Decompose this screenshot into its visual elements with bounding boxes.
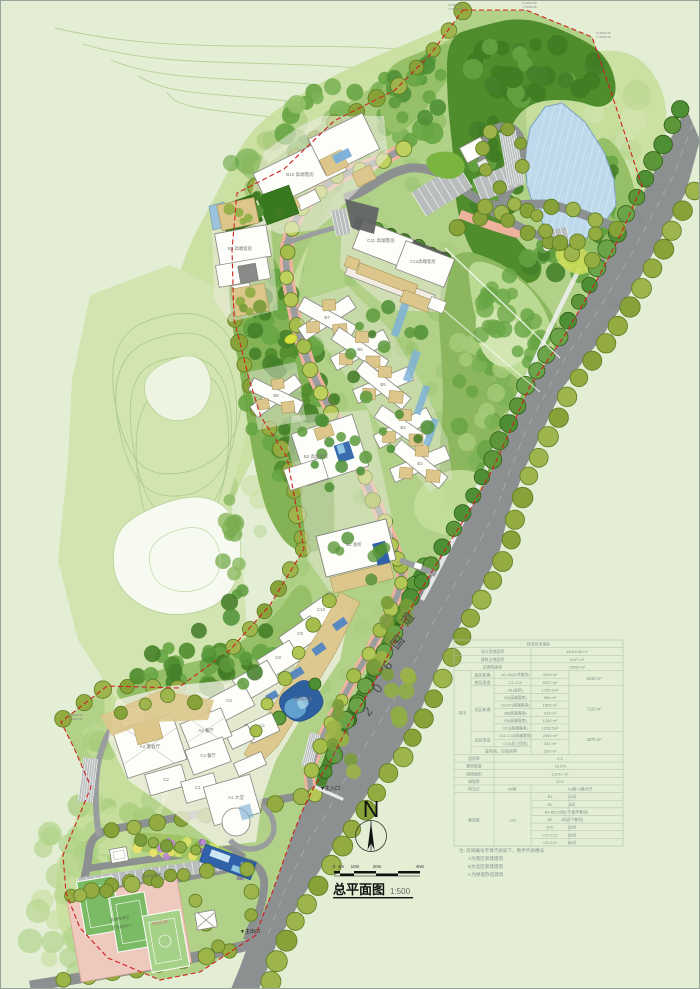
svg-text:2544 m²: 2544 m² <box>543 733 558 738</box>
svg-text:设计用地面积: 设计用地面积 <box>481 649 504 654</box>
svg-text:C1: C1 <box>195 785 201 790</box>
svg-text:▼主入口: ▼主入口 <box>320 785 340 792</box>
svg-text:896 m²: 896 m² <box>544 695 557 700</box>
svg-text:Y=3292.98: Y=3292.98 <box>596 35 611 39</box>
svg-text:4间(2个套间): 4间(2个套间) <box>561 817 584 822</box>
svg-text:Y=3292.98: Y=3292.98 <box>608 303 623 307</box>
svg-text:93辆: 93辆 <box>508 787 516 792</box>
svg-text:21241 m²: 21241 m² <box>552 771 569 776</box>
svg-text:5097 m²: 5097 m² <box>543 680 558 685</box>
svg-text:B7: B7 <box>324 315 330 320</box>
svg-text:10间: 10间 <box>568 794 576 799</box>
svg-text:Y=3292.98: Y=3292.98 <box>68 717 83 721</box>
svg-text:B9(高端客房): B9(高端客房) <box>504 718 527 723</box>
svg-text:B8: B8 <box>273 393 279 398</box>
svg-text:56间: 56间 <box>568 840 576 845</box>
svg-text:C5: C5 <box>259 723 265 728</box>
svg-text:C为保留改造建筑: C为保留改造建筑 <box>468 871 504 878</box>
svg-text:1280 m²: 1280 m² <box>543 718 558 723</box>
svg-text:停车位: 停车位 <box>468 787 480 792</box>
svg-text:注: 房间编号字母代表如下，数字代表楼号: 注: 房间编号字母代表如下，数字代表楼号 <box>459 847 545 854</box>
svg-text:B8(高端客房): B8(高端客房) <box>504 710 527 715</box>
svg-text:A2 宴会厅: A2 宴会厅 <box>140 743 161 750</box>
svg-text:建筑密度: 建筑密度 <box>466 764 482 769</box>
svg-text:N: N <box>363 796 380 822</box>
svg-text:0.4: 0.4 <box>557 756 563 761</box>
svg-text:B3: B3 <box>417 461 423 466</box>
svg-text:10m: 10m <box>351 864 360 869</box>
svg-text:40m: 40m <box>416 864 425 869</box>
svg-text:1:500: 1:500 <box>390 887 411 896</box>
svg-text:B9 高端客房: B9 高端客房 <box>228 245 253 252</box>
svg-text:其中: 其中 <box>459 711 467 716</box>
svg-text:C7: C7 <box>252 676 258 681</box>
svg-text:7128 m²: 7128 m² <box>586 707 602 712</box>
svg-text:B3-B8: B3-B8 <box>545 809 556 814</box>
svg-text:18550 m²: 18550 m² <box>569 664 586 669</box>
svg-text:B10: B10 <box>547 825 555 830</box>
svg-text:C6-C10: C6-C10 <box>543 840 557 845</box>
svg-text:B为北区新建建筑: B为北区新建建筑 <box>468 863 504 870</box>
svg-text:8346 m²: 8346 m² <box>586 676 602 681</box>
svg-text:B10(高端客房): B10(高端客房) <box>503 726 528 731</box>
svg-text:2876 m²: 2876 m² <box>586 737 602 742</box>
svg-text:无边际泳池: 无边际泳池 <box>294 696 313 701</box>
svg-text:B10 高端客房: B10 高端客房 <box>286 171 314 178</box>
svg-text:Y=3292.98: Y=3292.98 <box>522 5 537 9</box>
svg-text:B2(高端客房): B2(高端客房) <box>504 695 527 700</box>
svg-text:20m: 20m <box>373 864 382 869</box>
svg-text:146: 146 <box>509 817 516 822</box>
svg-text:A3 餐厅: A3 餐厅 <box>198 727 214 734</box>
svg-text:C8: C8 <box>275 655 281 660</box>
svg-text:332 m²: 332 m² <box>544 741 557 746</box>
svg-text:8197 m²: 8197 m² <box>570 657 585 662</box>
svg-text:200 m²: 200 m² <box>544 748 557 753</box>
svg-text:B6: B6 <box>357 347 363 352</box>
svg-text:C11-C12: C11-C12 <box>542 832 557 837</box>
svg-text:总平面图: 总平面图 <box>333 882 385 897</box>
svg-text:变电房、垃圾房等: 变电房、垃圾房等 <box>485 747 517 753</box>
svg-text:B3-B7(高端客房): B3-B7(高端客房) <box>501 703 530 708</box>
svg-text:经济技术指标: 经济技术指标 <box>527 642 550 647</box>
svg-text:1665 m²: 1665 m² <box>543 703 558 708</box>
svg-text:客房数: 客房数 <box>468 817 480 822</box>
svg-text:C13(员工宿舍): C13(员工宿舍) <box>503 741 528 746</box>
svg-text:C6: C6 <box>226 698 232 703</box>
svg-text:容积率: 容积率 <box>468 756 480 761</box>
svg-text:Y=3292.98: Y=3292.98 <box>650 187 665 191</box>
svg-text:C11-C12(高端客房): C11-C12(高端客房) <box>499 733 532 738</box>
svg-text:北区新建: 北区新建 <box>475 706 491 712</box>
svg-text:绿地率: 绿地率 <box>468 779 480 784</box>
svg-text:B1 会所: B1 会所 <box>346 541 362 548</box>
svg-text:B2: B2 <box>548 802 553 807</box>
svg-text:91辆+2辆大巴: 91辆+2辆大巴 <box>568 787 592 792</box>
svg-text:Y=3292.98: Y=3292.98 <box>448 7 463 11</box>
svg-text:绿地面积: 绿地面积 <box>466 771 482 776</box>
svg-text:C1-C10: C1-C10 <box>509 681 522 685</box>
svg-text:C4 餐厅: C4 餐厅 <box>200 752 216 759</box>
svg-text:8间: 8间 <box>569 802 575 807</box>
svg-text:A1 大堂: A1 大堂 <box>228 794 244 801</box>
svg-text:44919.95 m²: 44919.95 m² <box>566 649 589 654</box>
svg-text:C11 高端客房: C11 高端客房 <box>367 237 395 244</box>
svg-text:南区改造: 南区改造 <box>475 679 491 685</box>
svg-text:1228.5m²: 1228.5m² <box>542 726 560 731</box>
svg-text:1755.5m²: 1755.5m² <box>542 687 560 692</box>
svg-text:A为南区新建建筑: A为南区新建建筑 <box>468 855 504 862</box>
svg-text:B5: B5 <box>380 382 386 387</box>
svg-text:B2 高端客房: B2 高端客房 <box>304 453 329 460</box>
svg-text:B1(会所): B1(会所) <box>508 687 524 692</box>
svg-text:▼主出口: ▼主出口 <box>240 928 260 935</box>
svg-text:18.2%: 18.2% <box>554 764 566 769</box>
svg-text:313 m²: 313 m² <box>544 710 557 715</box>
svg-text:47%: 47% <box>556 779 564 784</box>
svg-text:22间(2个豪华套间): 22间(2个豪华套间) <box>556 809 589 814</box>
svg-text:C9: C9 <box>297 631 303 636</box>
svg-text:B9: B9 <box>548 817 553 822</box>
svg-text:B4: B4 <box>400 425 406 430</box>
svg-text:C2: C2 <box>163 777 169 782</box>
svg-text:4m: 4m <box>338 864 345 869</box>
svg-text:南区新建: 南区新建 <box>475 672 491 678</box>
svg-text:A1-A6(公共服务): A1-A6(公共服务) <box>501 672 530 677</box>
svg-text:28间: 28间 <box>568 832 576 837</box>
svg-text:建筑占地面积: 建筑占地面积 <box>481 657 504 662</box>
svg-text:北区改造: 北区改造 <box>475 736 491 742</box>
svg-text:3244 m²: 3244 m² <box>543 672 558 677</box>
svg-text:16间: 16间 <box>568 825 576 830</box>
svg-text:B1: B1 <box>548 794 553 799</box>
svg-text:总建筑面积: 总建筑面积 <box>483 664 503 669</box>
svg-text:C10: C10 <box>317 607 326 612</box>
svg-text:C12高端客房: C12高端客房 <box>410 258 436 265</box>
